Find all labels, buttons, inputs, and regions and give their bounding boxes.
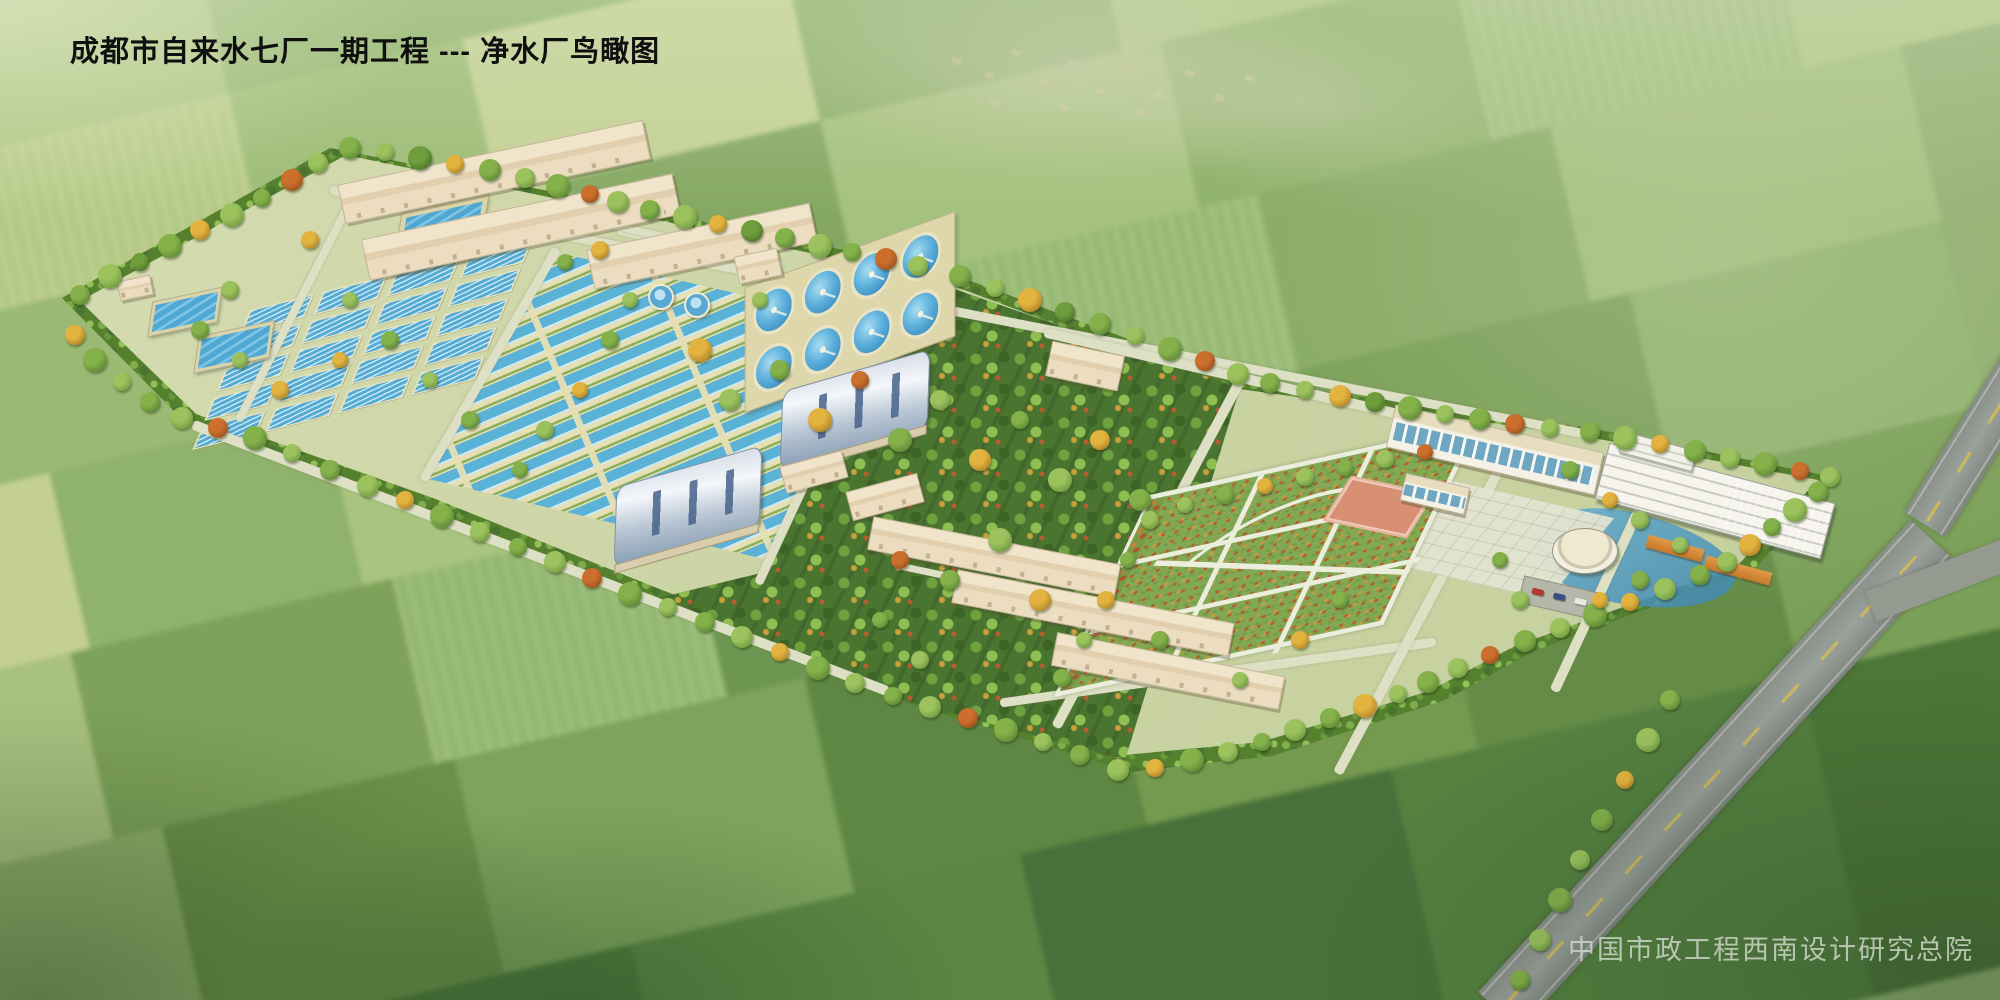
- tree: [1180, 748, 1204, 772]
- tree: [1684, 440, 1706, 462]
- tree: [1550, 618, 1570, 638]
- tree: [271, 381, 289, 399]
- tree: [771, 643, 789, 661]
- tree: [1541, 419, 1559, 437]
- tree: [1227, 363, 1249, 385]
- tree: [659, 598, 677, 616]
- tree: [1514, 630, 1536, 652]
- tree: [1332, 592, 1348, 608]
- tree: [422, 372, 438, 388]
- tree: [888, 428, 912, 452]
- tree: [1089, 313, 1111, 335]
- tree: [65, 325, 85, 345]
- tree: [673, 205, 697, 229]
- tree: [1510, 970, 1530, 990]
- tree: [1783, 498, 1807, 522]
- car-blue: [1553, 593, 1566, 602]
- tree: [408, 146, 432, 170]
- tree: [171, 407, 193, 429]
- tree: [1055, 302, 1075, 322]
- tree: [1436, 405, 1454, 423]
- tree: [618, 582, 642, 606]
- tree: [1146, 759, 1164, 777]
- tree: [601, 331, 619, 349]
- tree: [572, 382, 588, 398]
- tree: [1053, 669, 1071, 687]
- tree: [1651, 435, 1669, 453]
- round-pavilion-building: [1552, 528, 1618, 574]
- tree: [1029, 589, 1051, 611]
- filter-basin-cell: [277, 363, 351, 402]
- tree: [1195, 351, 1215, 371]
- tree: [83, 348, 107, 372]
- tree: [731, 626, 753, 648]
- tree: [281, 169, 303, 191]
- tree: [1097, 591, 1115, 609]
- tree: [891, 551, 909, 569]
- tree: [1151, 631, 1169, 649]
- tree: [845, 673, 865, 693]
- tree: [158, 234, 182, 258]
- tree: [1158, 337, 1182, 361]
- tree: [1448, 658, 1468, 678]
- circular-clarifier: [851, 301, 892, 363]
- tree: [1126, 327, 1144, 345]
- tree: [357, 475, 379, 497]
- tree: [253, 189, 271, 207]
- tree: [1260, 373, 1280, 393]
- tree: [808, 234, 832, 258]
- tree: [958, 708, 978, 728]
- tree: [1107, 759, 1129, 781]
- tree: [208, 418, 228, 438]
- aerial-rendering-canvas: 成都市自来水七厂一期工程 --- 净水厂鸟瞰图 中国市政工程西南设计研究总院: [0, 0, 2000, 1000]
- design-institute-credit: 中国市政工程西南设计研究总院: [1568, 928, 1974, 967]
- tree: [1018, 288, 1042, 312]
- tree: [1376, 450, 1394, 468]
- tree: [1808, 482, 1828, 502]
- tree: [1048, 468, 1072, 492]
- tree: [1616, 771, 1634, 789]
- tree: [221, 281, 239, 299]
- tree: [1570, 850, 1590, 870]
- tree: [446, 155, 464, 173]
- tree: [1481, 646, 1499, 664]
- tree: [1720, 448, 1740, 468]
- tree: [988, 528, 1012, 552]
- tree: [470, 522, 490, 542]
- tree: [1753, 452, 1777, 476]
- circular-clarifier: [802, 261, 843, 323]
- tree: [709, 215, 727, 233]
- tree: [752, 292, 768, 308]
- tree: [1216, 486, 1234, 504]
- tree: [872, 612, 888, 628]
- tree: [930, 390, 950, 410]
- tree: [1763, 518, 1781, 536]
- circular-clarifier: [753, 279, 794, 341]
- tree: [1398, 396, 1422, 420]
- filter-basin-cell: [350, 345, 424, 384]
- car-white: [1574, 597, 1587, 606]
- tree: [1417, 671, 1439, 693]
- tree: [1011, 411, 1029, 429]
- tree: [479, 159, 501, 181]
- tree: [536, 421, 554, 439]
- tree: [884, 687, 902, 705]
- tree: [808, 408, 832, 432]
- tree: [332, 352, 348, 368]
- tree: [719, 389, 741, 411]
- tree: [342, 292, 358, 308]
- tree: [1296, 381, 1314, 399]
- tree: [1141, 511, 1159, 529]
- tree: [1353, 694, 1377, 718]
- tree: [1218, 742, 1238, 762]
- tree: [396, 491, 414, 509]
- tree: [1690, 565, 1710, 585]
- tree: [301, 231, 319, 249]
- dosing-tank-2: [684, 292, 710, 318]
- tree: [1717, 552, 1737, 572]
- tree: [1602, 492, 1618, 508]
- tree: [1672, 537, 1688, 553]
- tree: [1591, 809, 1613, 831]
- filter-basin-cell: [301, 305, 375, 344]
- circular-clarifier: [900, 283, 941, 345]
- tree: [1337, 460, 1353, 476]
- tree: [1257, 478, 1273, 494]
- tree: [339, 137, 361, 159]
- tree: [949, 265, 971, 287]
- tree: [220, 203, 244, 227]
- tree: [1296, 468, 1314, 486]
- tree: [1284, 719, 1306, 741]
- tree: [113, 373, 131, 391]
- tree: [1232, 672, 1248, 688]
- tree: [1469, 408, 1491, 430]
- circular-clarifier: [802, 319, 843, 381]
- tree: [1505, 414, 1525, 434]
- tree: [1177, 497, 1193, 513]
- tree: [509, 538, 527, 556]
- tree: [770, 360, 790, 380]
- tree: [131, 253, 149, 271]
- tree: [512, 462, 528, 478]
- tree: [843, 243, 861, 261]
- tree: [1129, 489, 1151, 511]
- tree: [1511, 591, 1529, 609]
- tree: [582, 568, 602, 588]
- tree: [1548, 888, 1572, 912]
- tree: [308, 153, 328, 173]
- tree: [232, 352, 248, 368]
- tree: [1561, 461, 1579, 479]
- tree: [775, 228, 795, 248]
- tree: [919, 696, 941, 718]
- tree: [1076, 632, 1092, 648]
- tree: [875, 248, 897, 270]
- tree: [911, 651, 929, 669]
- tree: [1631, 571, 1649, 589]
- tree: [191, 321, 209, 339]
- filter-basin-cell: [374, 287, 448, 326]
- tree: [986, 279, 1004, 297]
- tree: [1329, 385, 1351, 407]
- tree: [591, 241, 609, 259]
- tree: [688, 338, 712, 362]
- tree: [70, 285, 90, 305]
- tree: [581, 185, 599, 203]
- tree: [1636, 728, 1660, 752]
- tree: [140, 392, 160, 412]
- tree: [851, 371, 869, 389]
- tree: [1417, 444, 1433, 460]
- tree: [622, 292, 638, 308]
- tree: [1621, 593, 1639, 611]
- filter-basin-cell: [289, 334, 363, 373]
- dosing-tank-1: [648, 284, 674, 310]
- tree: [1492, 552, 1508, 568]
- tree: [1529, 929, 1551, 951]
- tree: [1291, 631, 1309, 649]
- tree: [98, 264, 122, 288]
- tree: [1613, 426, 1637, 450]
- tree: [1592, 592, 1608, 608]
- tree: [515, 168, 535, 188]
- tree: [243, 426, 267, 450]
- tree: [544, 551, 566, 573]
- page-title: 成都市自来水七厂一期工程 --- 净水厂鸟瞰图: [70, 28, 660, 70]
- tree: [381, 331, 399, 349]
- tree: [1791, 462, 1809, 480]
- tree: [557, 254, 573, 270]
- tree: [1580, 422, 1600, 442]
- tree: [994, 718, 1018, 742]
- tree: [190, 220, 210, 240]
- tree: [376, 143, 394, 161]
- tree: [1253, 733, 1271, 751]
- tree: [741, 220, 763, 242]
- tree: [908, 256, 928, 276]
- tree: [430, 504, 454, 528]
- tree: [1034, 733, 1052, 751]
- tree: [546, 174, 570, 198]
- car-red: [1531, 588, 1544, 597]
- tree: [320, 460, 340, 480]
- tree: [461, 411, 479, 429]
- tree: [806, 656, 830, 680]
- tree: [1631, 511, 1649, 529]
- filter-basin-cell: [435, 298, 509, 337]
- tree: [695, 612, 715, 632]
- tree: [1120, 552, 1136, 568]
- tree: [1365, 392, 1385, 412]
- tree: [1654, 578, 1676, 600]
- filter-basin-cell: [362, 316, 436, 355]
- tree: [1660, 690, 1680, 710]
- tree: [1090, 430, 1110, 450]
- tree: [1739, 534, 1761, 556]
- tree: [1070, 745, 1090, 765]
- tree: [607, 191, 629, 213]
- tree: [640, 200, 660, 220]
- tree: [969, 449, 991, 471]
- tree: [1389, 685, 1407, 703]
- tree: [283, 444, 301, 462]
- tree: [940, 570, 960, 590]
- filter-basin-cell: [447, 268, 521, 307]
- tree: [1320, 708, 1340, 728]
